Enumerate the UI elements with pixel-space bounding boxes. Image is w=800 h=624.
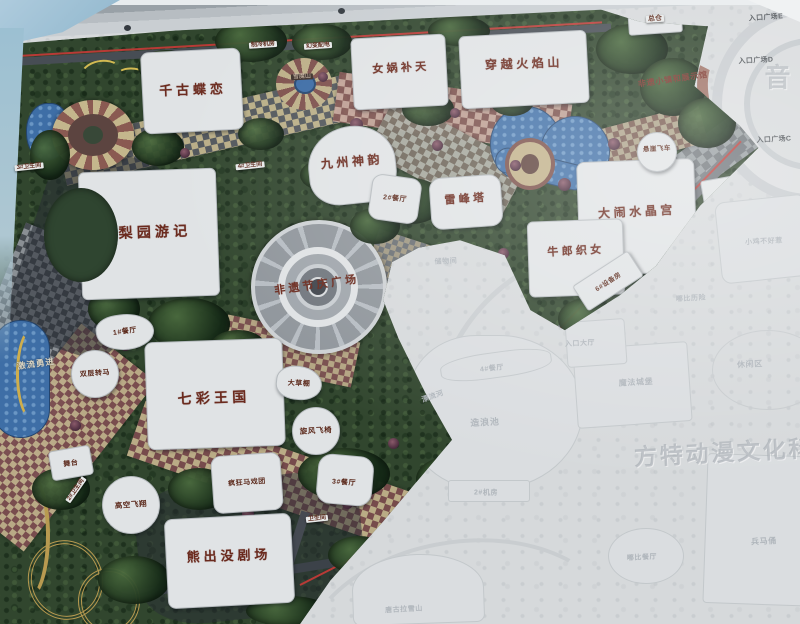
- faint-label: 小鸡不好惹: [745, 237, 783, 246]
- faint-label: 兵马俑: [751, 537, 777, 547]
- facility-label: 制冷机房: [249, 41, 277, 49]
- ride-label: 双层转马: [80, 369, 111, 378]
- entrance-label: 入口广场E: [749, 13, 784, 23]
- attraction-label: 非遗节庆广场: [274, 274, 361, 297]
- ride-label: 疯狂马戏团: [228, 478, 266, 488]
- park-map-photo: 千古蝶恋女娲补天穿越火焰山九州神韵雷峰塔梨园游记大闹水晶宫牛郎织女非遗节庆广场七…: [0, 0, 800, 624]
- attraction-label: 千古蝶恋: [159, 82, 227, 98]
- faint-label: 2#机房: [474, 489, 498, 496]
- ride-label: 激流勇进: [17, 357, 56, 371]
- faint-label: 漂流河: [421, 390, 445, 405]
- district-label: 非遗小镇和展示馆: [638, 71, 709, 89]
- faint-label: 造浪池: [470, 418, 500, 429]
- faint-label: 嘟比历险: [676, 295, 707, 304]
- attraction-label: 牛郎织女: [547, 245, 605, 260]
- ride-label: 6#设备房: [595, 272, 623, 294]
- attraction-label: 女娲补天: [372, 62, 430, 77]
- faint-watermark-label: 方特动漫文化科技: [633, 435, 800, 470]
- faint-label: 嘟比餐厅: [627, 554, 658, 563]
- faint-label: 休闲区: [737, 360, 763, 370]
- attraction-label: 大闹水晶宫: [598, 204, 677, 221]
- faint-watermark-label: 音: [764, 64, 793, 91]
- attraction-label: 熊出没剧场: [187, 548, 272, 565]
- facility-label: 卫生间: [306, 515, 329, 524]
- faint-label: 入口大厅: [565, 340, 596, 349]
- facility-label: 总仓: [646, 15, 664, 24]
- entrance-label: 入口广场C: [756, 135, 791, 144]
- facility-label-dark: 雪魔山: [291, 73, 313, 80]
- facility-label: 3#卫生间: [14, 162, 43, 171]
- ride-label: 1#餐厅: [113, 327, 138, 338]
- ride-label: 2#餐厅: [383, 194, 408, 204]
- facility-label: 幻变配电: [304, 42, 332, 50]
- ride-label: 大草棚: [288, 380, 311, 388]
- ride-label: 3#餐厅: [332, 478, 356, 487]
- attraction-label: 梨园游记: [118, 223, 191, 240]
- map-labels-layer: 千古蝶恋女娲补天穿越火焰山九州神韵雷峰塔梨园游记大闹水晶宫牛郎织女非遗节庆广场七…: [0, 0, 800, 624]
- attraction-label: 九州神韵: [320, 153, 383, 171]
- ride-label: 旋风飞椅: [300, 426, 333, 436]
- faint-label: 唐古拉雪山: [385, 605, 423, 614]
- ride-label: 舞台: [63, 459, 79, 468]
- ride-label: 高空飞翔: [115, 500, 148, 510]
- facility-label: 4#卫生间: [235, 161, 264, 170]
- faint-label: 4#餐厅: [480, 364, 505, 374]
- attraction-label: 穿越火焰山: [485, 56, 563, 71]
- attraction-label: 七彩王国: [177, 389, 250, 406]
- ride-label: 悬崖飞车: [643, 146, 671, 154]
- facility-label: 2#卫生间: [65, 476, 87, 503]
- attraction-label: 雷峰塔: [444, 193, 488, 208]
- faint-label: 魔法城堡: [619, 378, 654, 388]
- faint-label: 储物间: [434, 258, 457, 267]
